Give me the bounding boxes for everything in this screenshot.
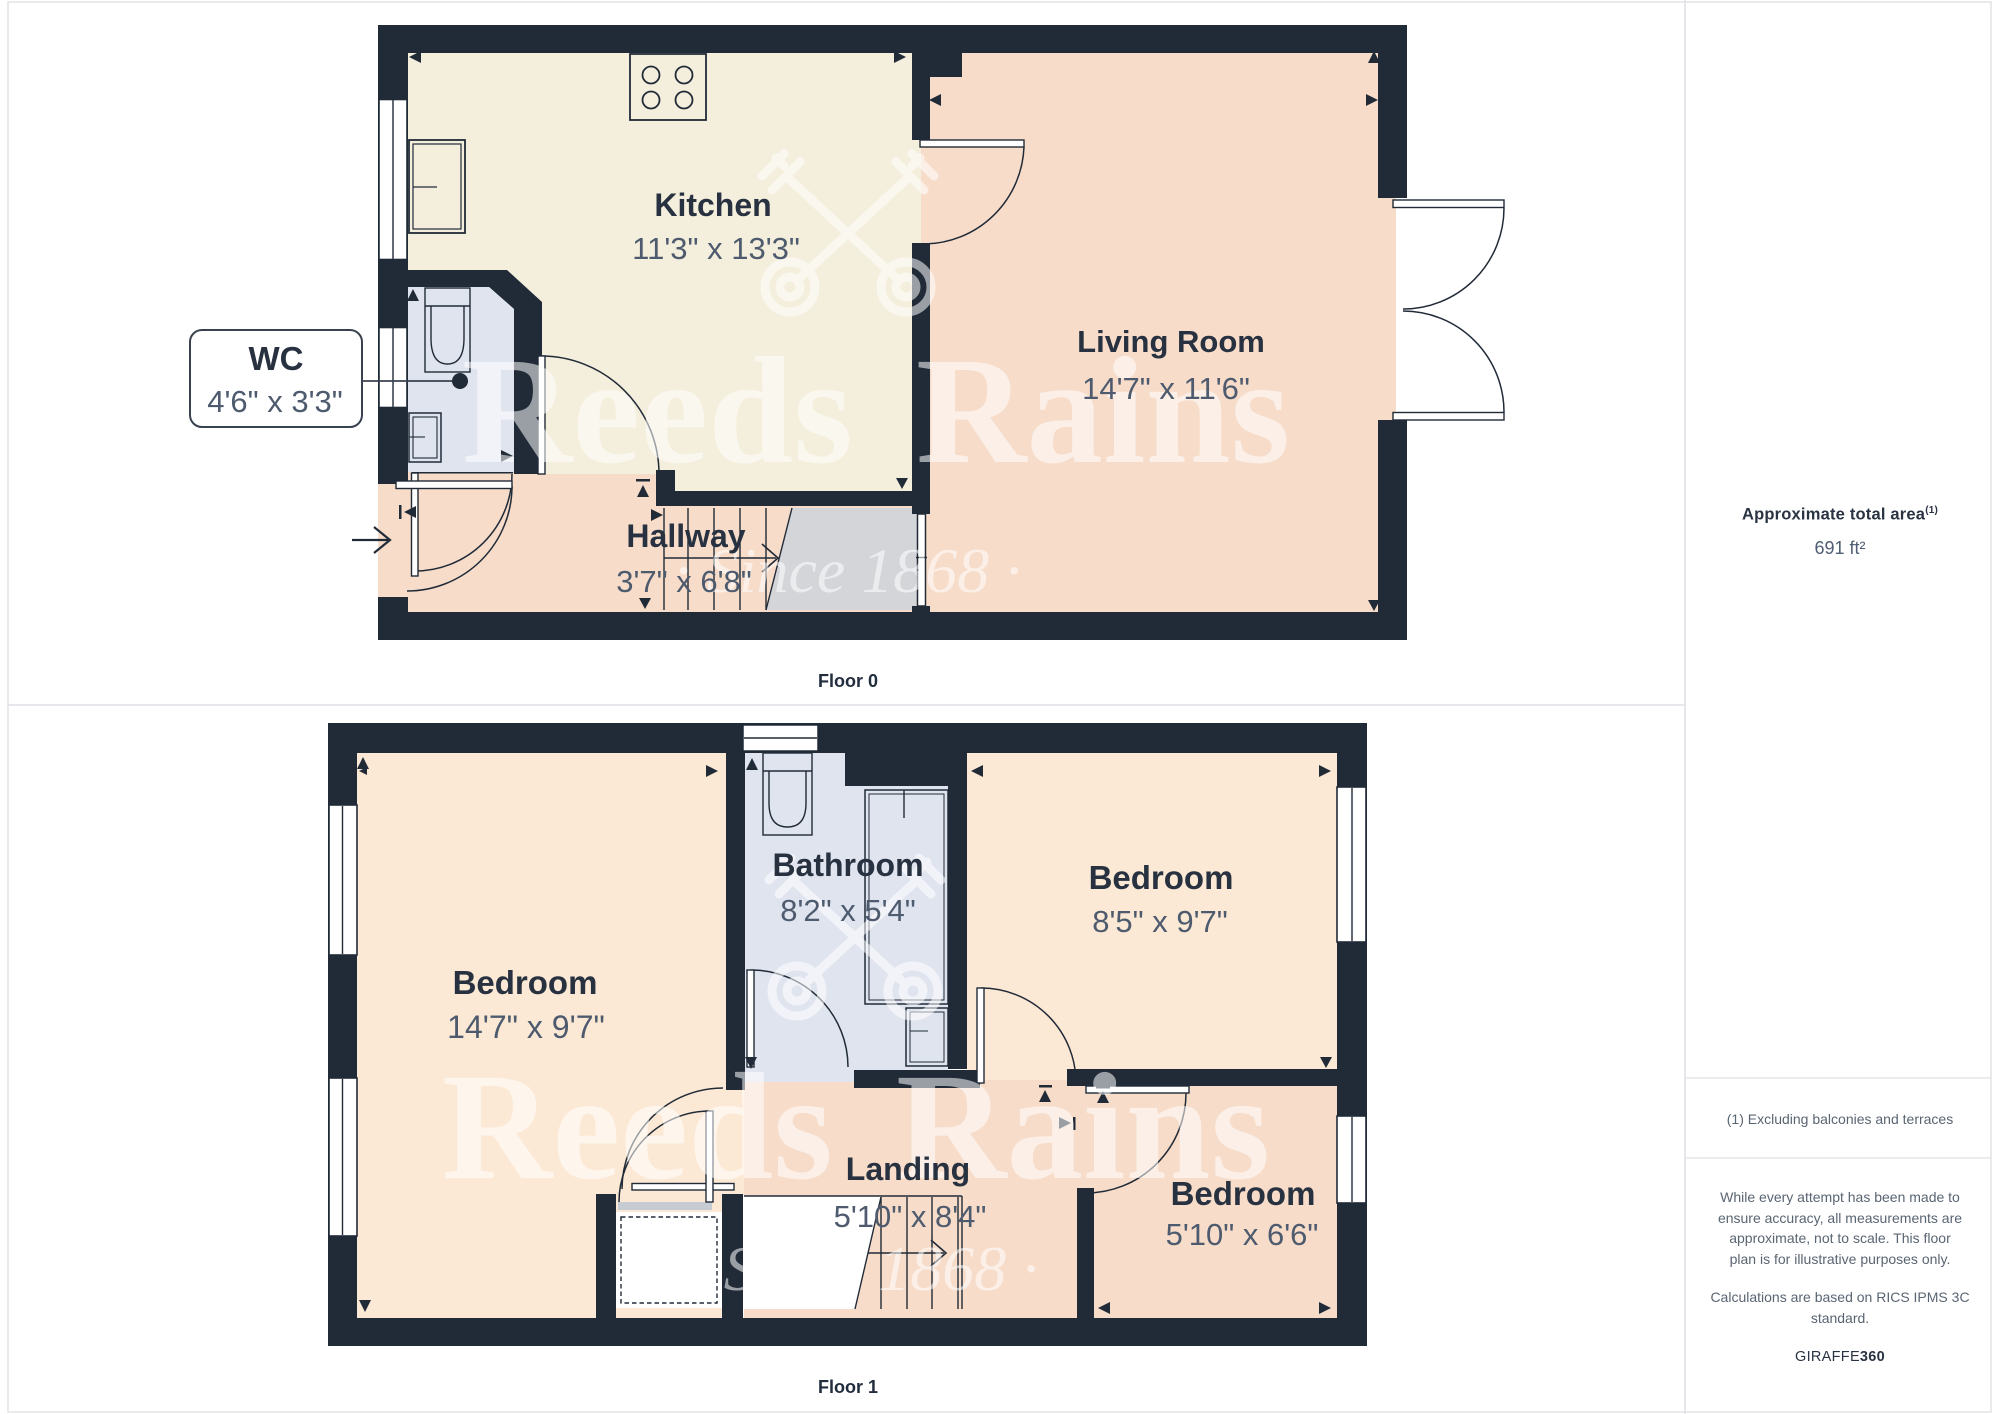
svg-text:3'7" x 6'8": 3'7" x 6'8" (616, 564, 752, 599)
svg-text:Bedroom: Bedroom (1171, 1175, 1316, 1212)
svg-text:Kitchen: Kitchen (654, 187, 771, 223)
svg-text:Bathroom: Bathroom (772, 847, 923, 883)
svg-text:Landing: Landing (846, 1151, 970, 1187)
svg-text:Floor 1: Floor 1 (818, 1377, 878, 1397)
svg-text:Living Room: Living Room (1077, 324, 1265, 359)
svg-text:8'2" x 5'4": 8'2" x 5'4" (780, 893, 916, 928)
svg-text:5'10" x 6'6": 5'10" x 6'6" (1166, 1217, 1319, 1252)
svg-text:11'3" x 13'3": 11'3" x 13'3" (632, 231, 800, 266)
svg-text:14'7" x 9'7": 14'7" x 9'7" (447, 1009, 605, 1045)
svg-text:WC: WC (249, 340, 304, 377)
svg-text:Bedroom: Bedroom (453, 964, 598, 1001)
svg-text:5'10" x 8'4": 5'10" x 8'4" (834, 1199, 987, 1234)
svg-text:4'6" x 3'3": 4'6" x 3'3" (207, 384, 343, 419)
svg-text:14'7" x 11'6": 14'7" x 11'6" (1082, 371, 1250, 406)
svg-text:Bedroom: Bedroom (1089, 859, 1234, 896)
svg-text:Floor 0: Floor 0 (818, 671, 878, 691)
svg-text:8'5" x 9'7": 8'5" x 9'7" (1092, 904, 1228, 939)
svg-text:· Since 1868 ·: · Since 1868 · (692, 1233, 1039, 1304)
svg-text:Hallway: Hallway (626, 518, 745, 554)
